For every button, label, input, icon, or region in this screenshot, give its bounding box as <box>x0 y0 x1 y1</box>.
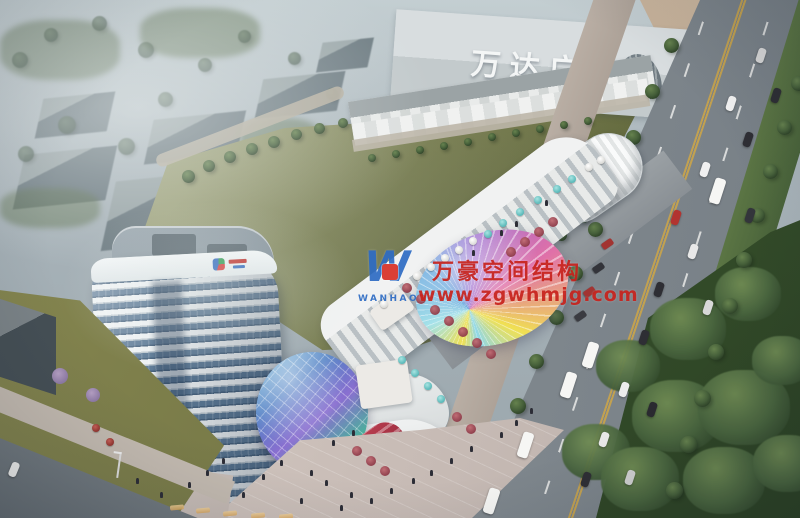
roof-equipment <box>152 234 196 256</box>
district-green <box>0 188 100 228</box>
tree <box>288 52 301 65</box>
watermark: W WANHAO 万豪空间结构 www.zgwhmjg.com <box>356 248 616 314</box>
tree <box>158 92 173 107</box>
tree <box>238 30 251 43</box>
tree <box>44 28 58 42</box>
wanhao-logo-mark <box>382 264 398 280</box>
watermark-company: 万豪空间结构 <box>432 254 582 286</box>
tower-logo-text-blue <box>233 265 245 269</box>
white-pavilion <box>355 359 413 410</box>
tree <box>118 138 135 155</box>
tree <box>198 58 212 72</box>
aerial-rendering-scene: 万达广场 <box>0 0 800 518</box>
tree <box>58 116 76 134</box>
tree <box>12 52 28 68</box>
tree <box>18 146 34 162</box>
district-building <box>316 37 374 72</box>
tree <box>92 16 107 31</box>
tree <box>138 42 154 58</box>
wanhao-logo-name: WANHAO <box>358 294 419 304</box>
tower-logo-icon <box>212 258 225 271</box>
district-building <box>35 91 116 138</box>
tower-logo-text-red <box>229 259 247 264</box>
watermark-website: www.zgwhmjg.com <box>418 284 639 306</box>
